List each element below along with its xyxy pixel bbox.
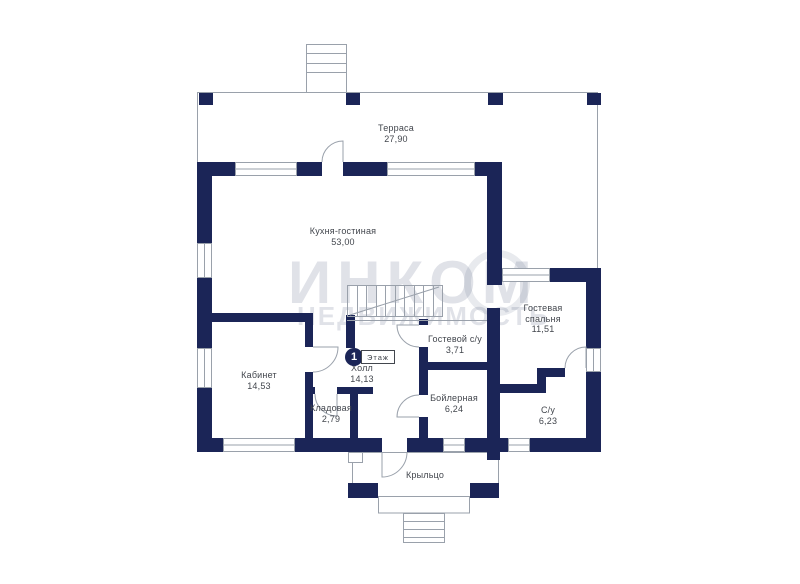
- room-label-boiler: Бойлерная 6,24: [430, 393, 478, 414]
- room-label-storage: Кладовая 2,79: [310, 403, 352, 424]
- room-label-office: Кабинет 14,53: [241, 370, 277, 391]
- room-label-porch: Крыльцо: [406, 470, 444, 481]
- room-area: 14,53: [241, 381, 277, 392]
- floor-plan-canvas: ИНКОМ НЕДВИЖИМОСТЬ: [0, 0, 800, 584]
- floor-label: Этаж: [361, 350, 395, 364]
- room-name: Гостевая спальня: [524, 303, 563, 324]
- room-label-guest-wc: Гостевой с/у 3,71: [428, 334, 482, 355]
- room-area: 14,13: [350, 374, 374, 385]
- room-label-bathroom: С/у 6,23: [539, 405, 557, 426]
- terrace-outline: [197, 45, 598, 271]
- room-name: Кладовая: [310, 403, 352, 413]
- room-area: 53,00: [310, 237, 376, 248]
- room-label-guest-bedroom: Гостевая спальня 11,51: [508, 303, 578, 335]
- room-label-hall: Холл 14,13: [350, 363, 374, 384]
- room-name: Кухня-гостиная: [310, 226, 376, 236]
- room-name: Бойлерная: [430, 393, 478, 403]
- room-name: Гостевой с/у: [428, 334, 482, 344]
- room-label-terrace: Терраса 27,90: [378, 123, 414, 144]
- room-name: Крыльцо: [406, 470, 444, 480]
- room-label-kitchen-living: Кухня-гостиная 53,00: [310, 226, 376, 247]
- staircase: [347, 285, 487, 321]
- floor-badge: 1 Этаж: [345, 348, 395, 366]
- walls: [197, 93, 601, 498]
- room-name: Терраса: [378, 123, 414, 133]
- room-name: С/у: [541, 405, 555, 415]
- room-area: 3,71: [428, 345, 482, 356]
- room-area: 11,51: [508, 324, 578, 335]
- room-area: 2,79: [310, 414, 352, 425]
- room-area: 27,90: [378, 134, 414, 145]
- room-area: 6,24: [430, 404, 478, 415]
- floor-plan-drawing: [0, 0, 800, 584]
- room-area: 6,23: [539, 416, 557, 427]
- room-name: Кабинет: [241, 370, 277, 380]
